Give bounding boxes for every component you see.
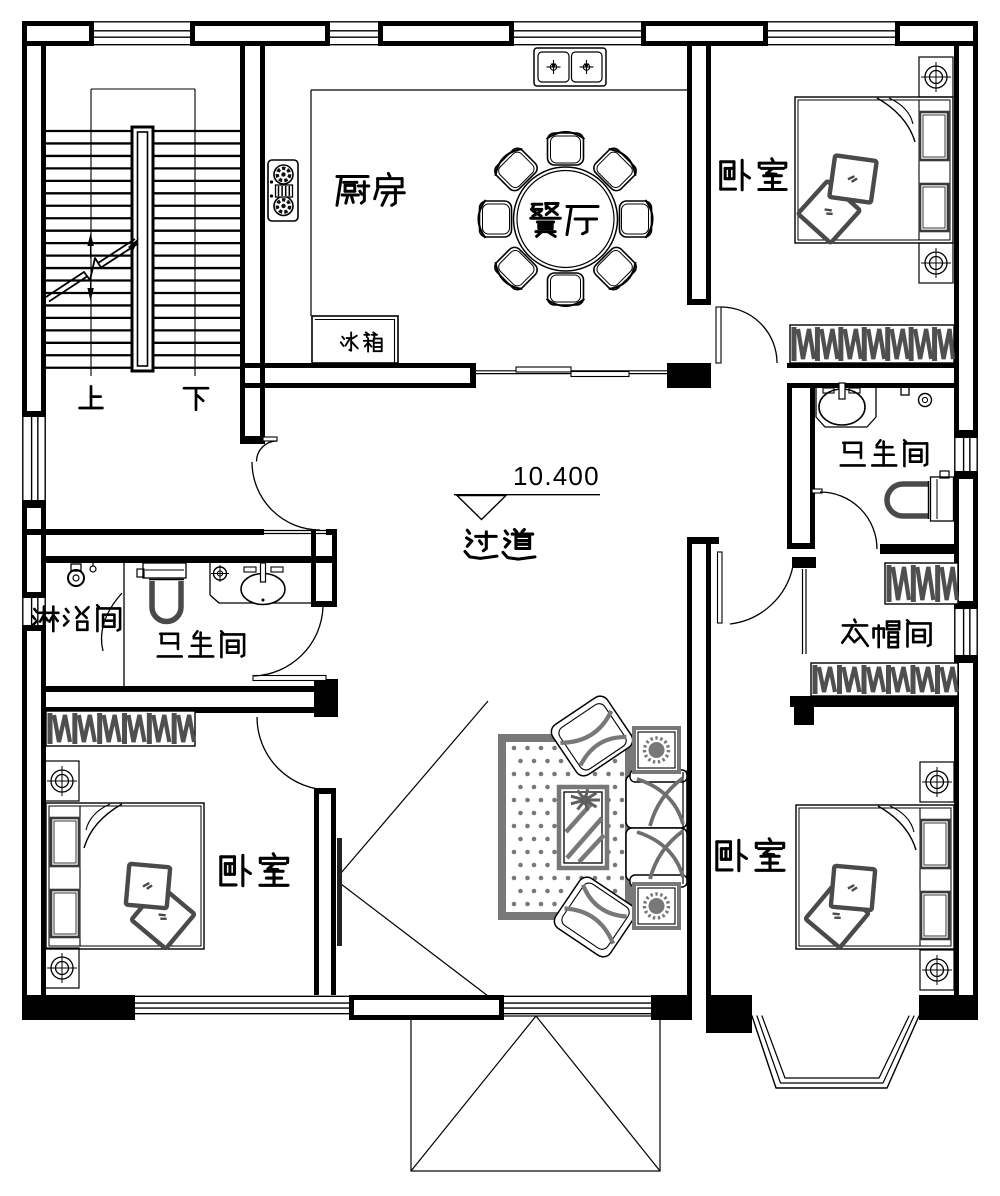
svg-text:10.400: 10.400 xyxy=(513,461,600,491)
